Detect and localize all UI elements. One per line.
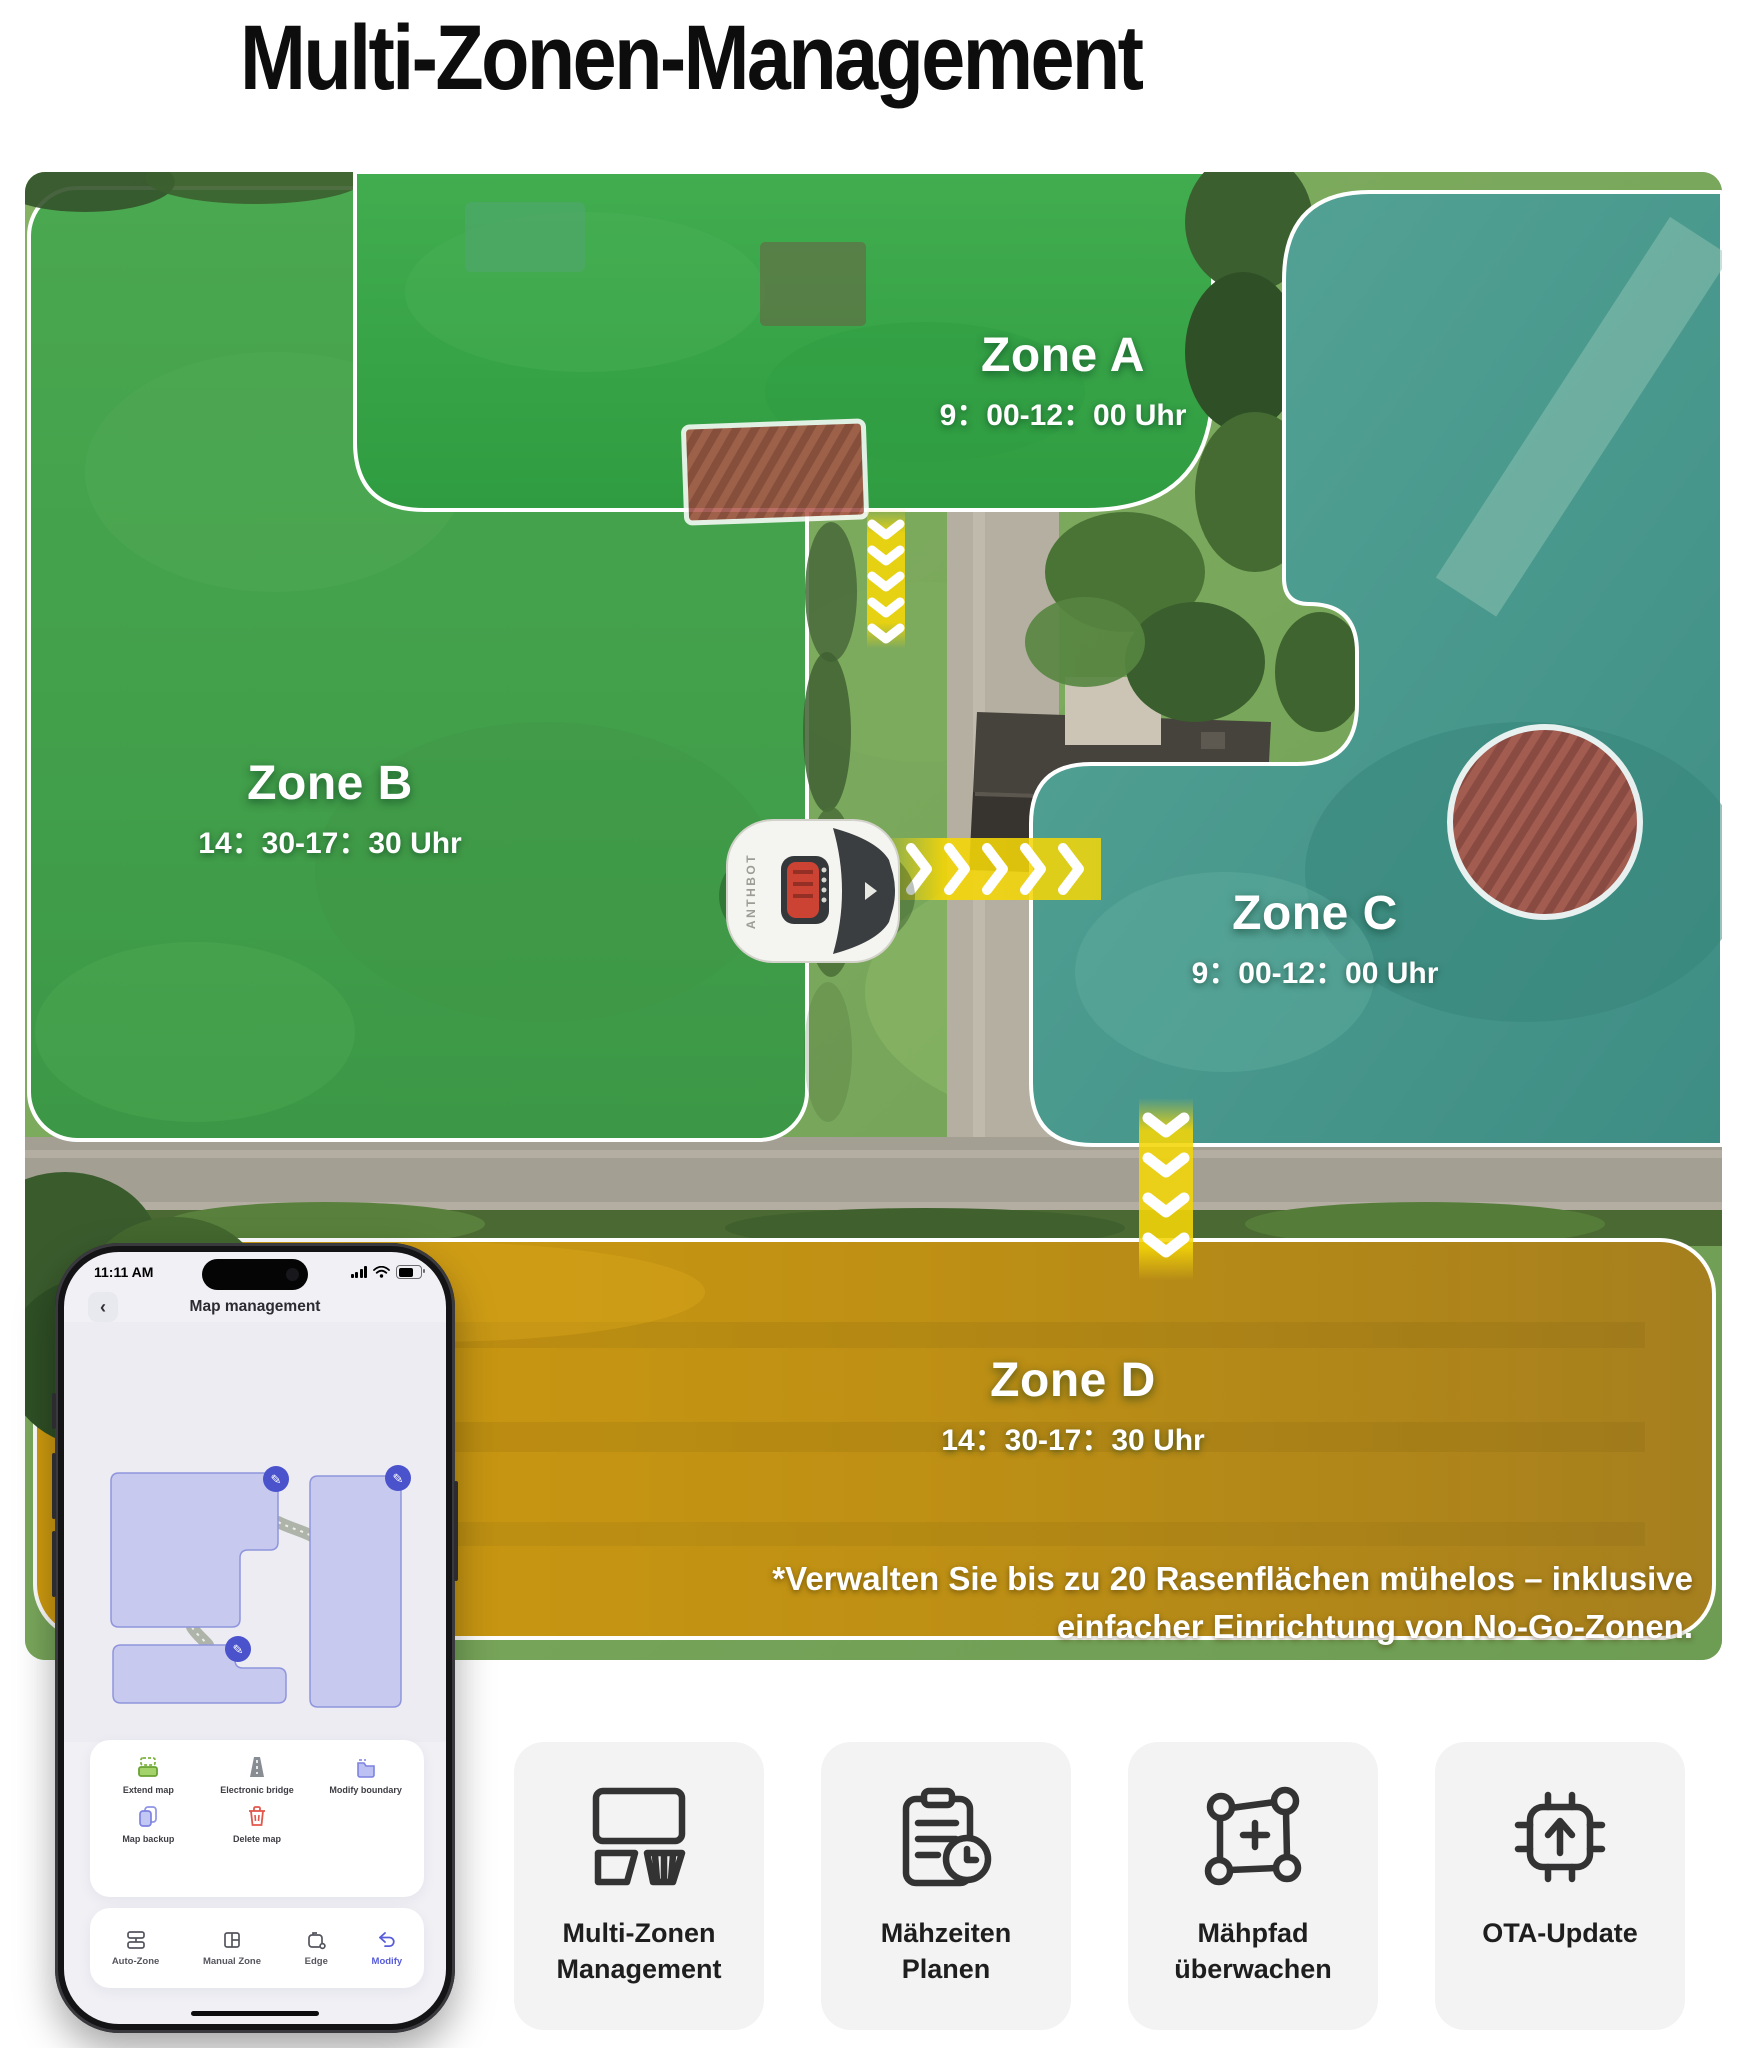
robot-mower: ANTHBOT bbox=[719, 820, 915, 962]
svg-text:✎: ✎ bbox=[271, 1472, 282, 1487]
tab-auto-zone[interactable]: Auto-Zone bbox=[112, 1929, 160, 1967]
feature-card-label: Mähpfad überwachen bbox=[1174, 1916, 1332, 1988]
feature-card-path-monitor: Mähpfad überwachen bbox=[1128, 1742, 1378, 2030]
zone-b-label: Zone B 14：30-17：30 Uhr bbox=[198, 756, 461, 862]
svg-text:✎: ✎ bbox=[233, 1642, 244, 1657]
tab-edge[interactable]: Edge bbox=[305, 1929, 328, 1967]
battery-icon bbox=[396, 1265, 422, 1279]
ota-update-icon bbox=[1504, 1781, 1616, 1893]
transfer-arrows-down-cd bbox=[1139, 1098, 1193, 1280]
power-button bbox=[454, 1481, 458, 1581]
zone-d-label: Zone D 14：30-17：30 Uhr bbox=[941, 1353, 1204, 1459]
tab-manual-zone[interactable]: Manual Zone bbox=[203, 1929, 261, 1967]
no-go-zone-circle bbox=[1450, 727, 1640, 917]
map-backup-icon bbox=[135, 1803, 161, 1829]
multi-zone-icon bbox=[580, 1781, 698, 1893]
electronic-bridge-icon bbox=[244, 1754, 270, 1780]
auto-zone-icon bbox=[125, 1929, 147, 1951]
transfer-arrows-down-a bbox=[867, 508, 905, 648]
edit-zone-2-button[interactable]: ✎ bbox=[385, 1465, 411, 1491]
edge-icon bbox=[305, 1929, 327, 1951]
camera-icon bbox=[286, 1268, 299, 1281]
extend-map-button[interactable]: Extend map bbox=[94, 1754, 203, 1795]
path-monitor-icon bbox=[1197, 1781, 1309, 1893]
mute-switch bbox=[52, 1393, 56, 1429]
manual-zone-icon bbox=[221, 1929, 243, 1951]
transfer-arrows-right bbox=[891, 838, 1101, 900]
zone-a-label: Zone A 9：00-12：00 Uhr bbox=[940, 328, 1187, 434]
modify-boundary-button[interactable]: Modify boundary bbox=[311, 1754, 420, 1795]
status-time: 11:11 AM bbox=[94, 1264, 153, 1280]
map-functions-card: Extend map Electronic bridge bbox=[90, 1740, 424, 1897]
home-indicator[interactable] bbox=[191, 2011, 319, 2016]
svg-text:✎: ✎ bbox=[393, 1471, 404, 1486]
app-map: ✎ ✎ ✎ bbox=[64, 1322, 446, 1742]
page: Multi-Zonen-Management bbox=[0, 0, 1747, 2048]
feature-card-label: Mähzeiten Planen bbox=[881, 1916, 1012, 1988]
schedule-icon bbox=[890, 1781, 1002, 1893]
tab-modify[interactable]: Modify bbox=[372, 1929, 403, 1967]
modify-icon bbox=[376, 1929, 398, 1951]
dynamic-island bbox=[202, 1259, 308, 1290]
volume-up-button bbox=[52, 1453, 56, 1519]
feature-card-ota: OTA-Update bbox=[1435, 1742, 1685, 2030]
status-icons bbox=[351, 1265, 423, 1279]
edit-zone-1-button[interactable]: ✎ bbox=[263, 1466, 289, 1492]
shed bbox=[760, 242, 866, 326]
feature-card-label: OTA-Update bbox=[1482, 1916, 1638, 1952]
edit-zone-3-button[interactable]: ✎ bbox=[225, 1636, 251, 1662]
map-zone-2[interactable] bbox=[310, 1476, 401, 1707]
volume-down-button bbox=[52, 1531, 56, 1597]
phone-mockup: 11:11 AM ‹ Map management bbox=[55, 1243, 455, 2033]
page-title: Multi-Zonen-Management bbox=[240, 6, 1141, 111]
app-title: Map management bbox=[64, 1298, 446, 1316]
extend-map-icon bbox=[135, 1754, 161, 1780]
wifi-icon bbox=[373, 1266, 390, 1278]
mower-brand-text: ANTHBOT bbox=[744, 853, 758, 929]
feature-cards: Multi-Zonen Management Mähzeiten Planen bbox=[514, 1742, 1685, 2030]
delete-map-icon bbox=[244, 1803, 270, 1829]
signal-icon bbox=[351, 1266, 368, 1278]
footnote: *Verwalten Sie bis zu 20 Rasenflächen mü… bbox=[772, 1555, 1693, 1651]
phone-screen: 11:11 AM ‹ Map management bbox=[64, 1252, 446, 2024]
no-go-rectangle bbox=[683, 421, 866, 523]
feature-card-multi-zone: Multi-Zonen Management bbox=[514, 1742, 764, 2030]
delete-map-button[interactable]: Delete map bbox=[203, 1803, 312, 1844]
feature-card-schedule: Mähzeiten Planen bbox=[821, 1742, 1071, 2030]
map-tools-tabbar: Auto-Zone Manual Zone bbox=[90, 1908, 424, 1988]
feature-card-label: Multi-Zonen Management bbox=[556, 1916, 721, 1988]
zone-c-label: Zone C 9：00-12：00 Uhr bbox=[1192, 886, 1439, 992]
electronic-bridge-button[interactable]: Electronic bridge bbox=[203, 1754, 312, 1795]
map-backup-button[interactable]: Map backup bbox=[94, 1803, 203, 1844]
modify-boundary-icon bbox=[353, 1754, 379, 1780]
